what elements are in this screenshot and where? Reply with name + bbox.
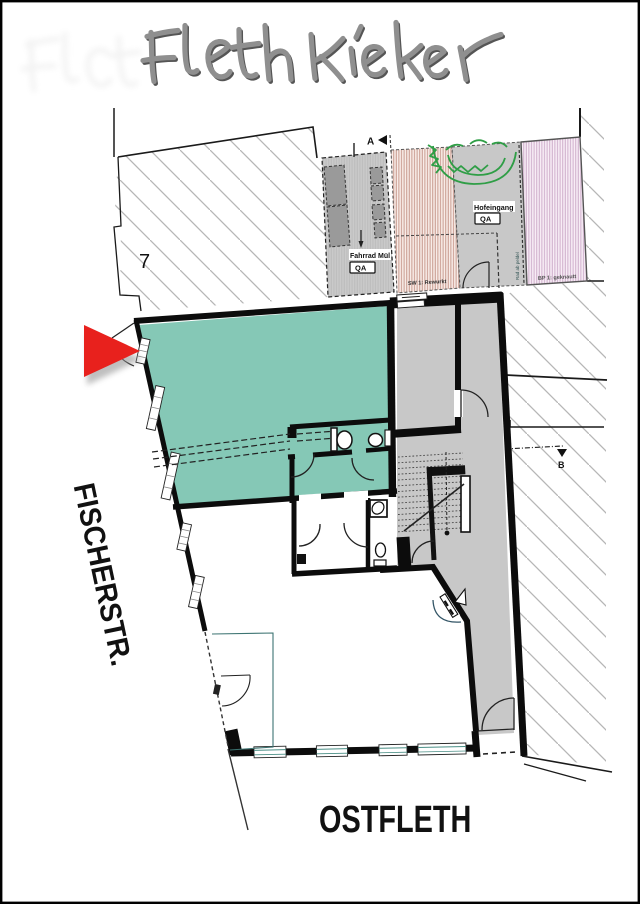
svg-text:A: A (367, 137, 374, 148)
svg-text:QA: QA (480, 215, 492, 224)
svg-text:Hofeingang: Hofeingang (474, 203, 514, 212)
svg-text:Rad ab peldel: Rad ab peldel (515, 252, 520, 280)
svg-text:7: 7 (139, 251, 150, 273)
svg-text:QA: QA (355, 264, 367, 273)
svg-text:Fahrrad Mül: Fahrrad Mül (350, 253, 390, 260)
svg-text:OSTFLETH: OSTFLETH (319, 798, 471, 841)
svg-text:B: B (558, 460, 565, 470)
